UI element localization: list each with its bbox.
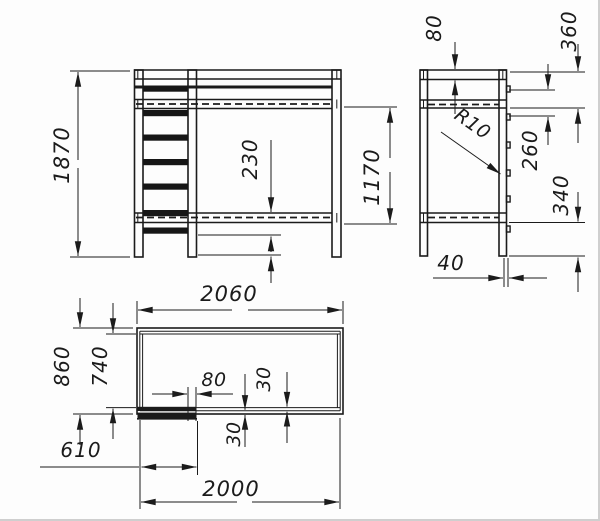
- top-view: [137, 328, 343, 419]
- label-side-340: 340: [549, 174, 573, 215]
- label-front-1170: 1170: [360, 148, 384, 205]
- front-right-post: [332, 70, 341, 257]
- side-view: [420, 70, 510, 256]
- bed-drawing-svg: 1870 230 1170 80 360 260 340 R10 40 2060…: [0, 0, 600, 521]
- dim-top-610: [40, 420, 198, 509]
- bed-outline-plan: [137, 328, 343, 414]
- dim-side-r10-leader: [441, 132, 501, 174]
- label-top-860: 860: [50, 345, 74, 386]
- label-side-80: 80: [422, 14, 446, 41]
- label-front-230: 230: [238, 138, 262, 179]
- label-top-610: 610: [60, 438, 101, 462]
- side-left-post: [420, 70, 428, 256]
- label-top-30-outer: 30: [223, 421, 245, 446]
- label-side-40: 40: [437, 251, 464, 275]
- label-top-2000: 2000: [202, 477, 259, 501]
- dimension-lines: [40, 42, 585, 509]
- label-top-2060: 2060: [200, 282, 257, 306]
- label-top-740: 740: [88, 345, 112, 386]
- label-side-360: 360: [557, 10, 581, 51]
- dim-side-340: [509, 192, 585, 292]
- label-front-total-height: 1870: [50, 126, 74, 183]
- label-top-80: 80: [201, 369, 226, 391]
- side-right-post: [499, 70, 507, 256]
- technical-drawing-sheet: 1870 230 1170 80 360 260 340 R10 40 2060…: [0, 0, 600, 521]
- label-top-30-inner: 30: [253, 366, 275, 391]
- dim-front-total-height: [70, 71, 130, 257]
- ladder-stile-left: [135, 70, 144, 257]
- label-side-260: 260: [518, 129, 542, 170]
- ladder-stile-right: [188, 70, 197, 257]
- label-side-r10: R10: [450, 104, 494, 144]
